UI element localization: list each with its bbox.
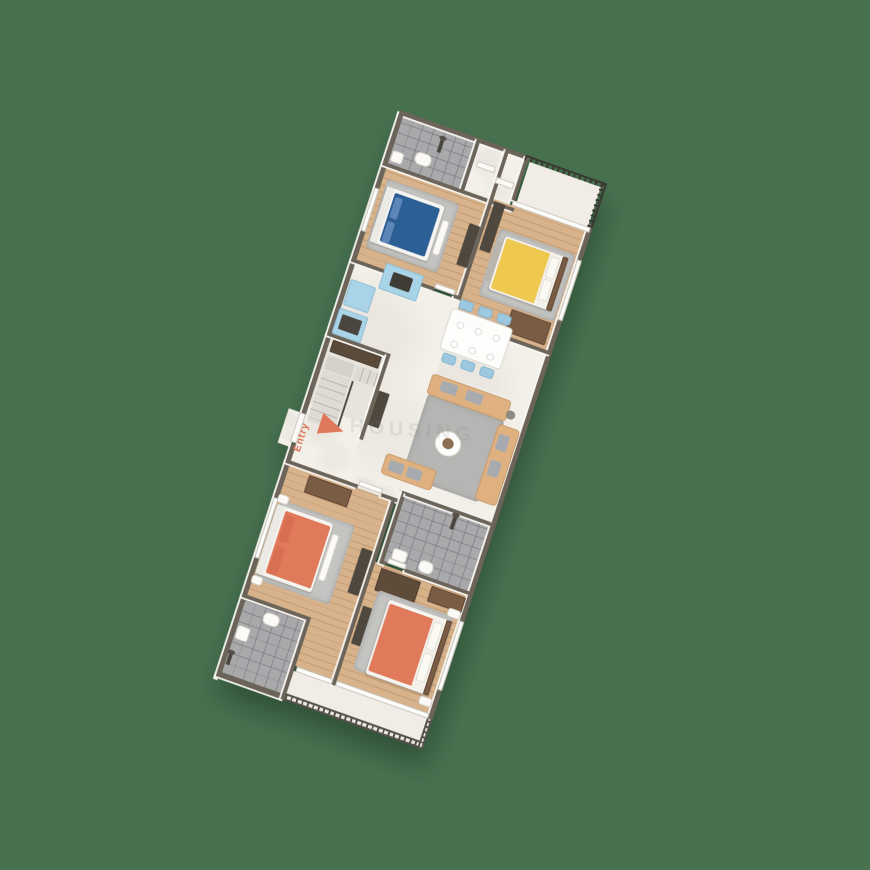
floor-plan-scene: Entry — [0, 0, 870, 870]
apartment-floor-plan: Entry — [215, 110, 607, 751]
